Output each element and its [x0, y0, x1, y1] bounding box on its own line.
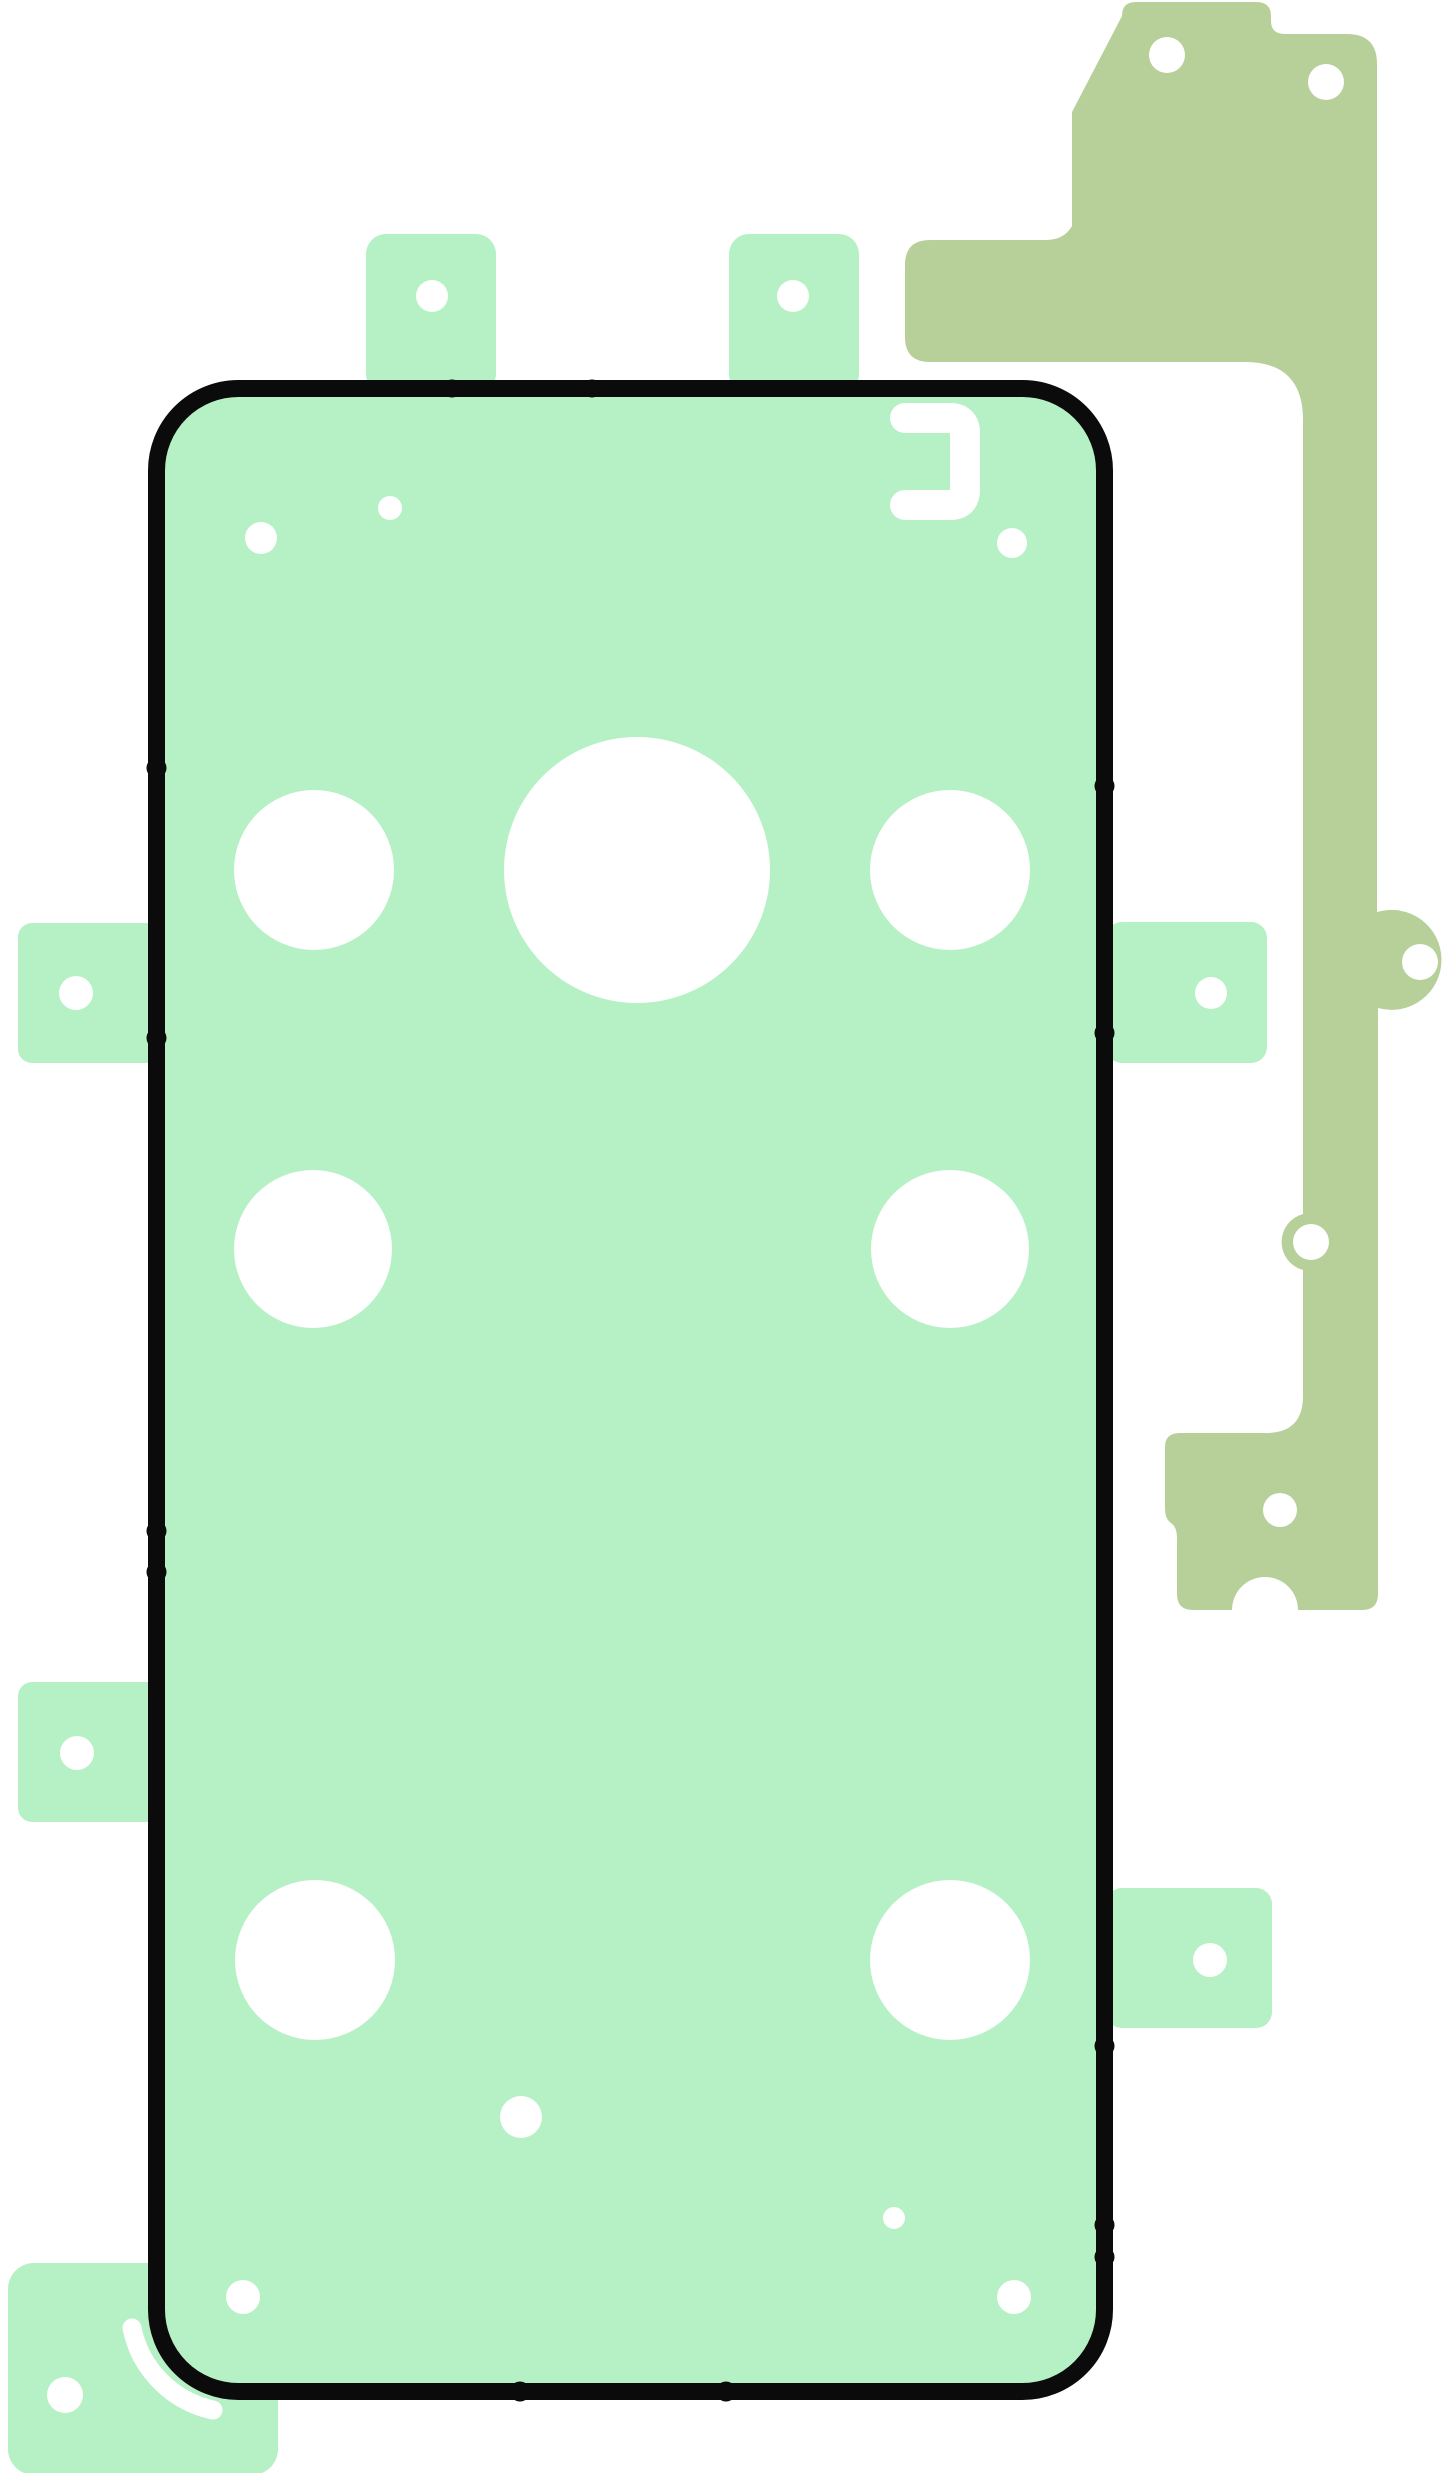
edge-mark-right-4	[1095, 2215, 1115, 2235]
camera-cutout-row2-left	[234, 1170, 392, 1328]
edge-mark-left-3	[147, 1521, 167, 1541]
dot-cutout-bottom-right	[997, 2280, 1031, 2314]
dot-cutout-top-center	[378, 496, 402, 520]
dot-cutout-bottom-small	[883, 2207, 905, 2229]
tab-top-left-hole	[416, 280, 448, 312]
edge-mark-bottom-2	[716, 2382, 736, 2402]
camera-cutout-row1-center	[504, 737, 770, 1003]
edge-mark-right-3	[1095, 2036, 1115, 2056]
side-strip-hole-right-bump	[1402, 944, 1438, 980]
edge-mark-left-1	[147, 758, 167, 778]
artwork-svg	[0, 0, 1445, 2473]
edge-mark-left-4	[147, 1562, 167, 1582]
camera-cutout-row1-right	[870, 790, 1030, 950]
tab-top-left	[366, 234, 496, 394]
edge-mark-right-2	[1095, 1023, 1115, 1043]
side-strip-hole-foot	[1263, 1493, 1297, 1527]
tab-top-right	[729, 234, 859, 394]
tab-right-upper	[1106, 922, 1267, 1063]
edge-mark-right-5	[1095, 2247, 1115, 2267]
tab-left-lower-hole	[60, 1736, 94, 1770]
edge-mark-top-1	[443, 380, 461, 398]
tab-right-lower-hole	[1193, 1943, 1227, 1977]
adhesive-set-diagram	[0, 0, 1445, 2473]
edge-mark-right-1	[1095, 776, 1115, 796]
camera-cutout-row3-left	[235, 1880, 395, 2040]
side-strip-hole-left-bump	[1293, 1224, 1329, 1260]
edge-mark-left-2	[147, 1028, 167, 1048]
dot-cutout-bottom-left	[226, 2280, 260, 2314]
tab-right-lower	[1106, 1888, 1272, 2028]
corner-piece-hole	[47, 2377, 83, 2413]
camera-cutout-row1-left	[234, 790, 394, 950]
dot-cutout-top-left	[245, 522, 277, 554]
main-gasket-outline	[157, 389, 1105, 2392]
edge-mark-bottom-1	[510, 2382, 530, 2402]
camera-cutout-row3-right	[870, 1880, 1030, 2040]
dot-cutout-near-bracket	[997, 528, 1027, 558]
camera-cutout-row2-right	[871, 1170, 1029, 1328]
tab-right-upper-hole	[1195, 977, 1227, 1009]
dot-cutout-bottom-center	[500, 2096, 542, 2138]
side-strip-hole-top-right	[1308, 64, 1344, 100]
edge-mark-top-2	[583, 380, 601, 398]
tab-top-right-hole	[777, 280, 809, 312]
side-strip-hole-top-left	[1149, 37, 1185, 73]
tab-left-upper-hole	[59, 976, 93, 1010]
